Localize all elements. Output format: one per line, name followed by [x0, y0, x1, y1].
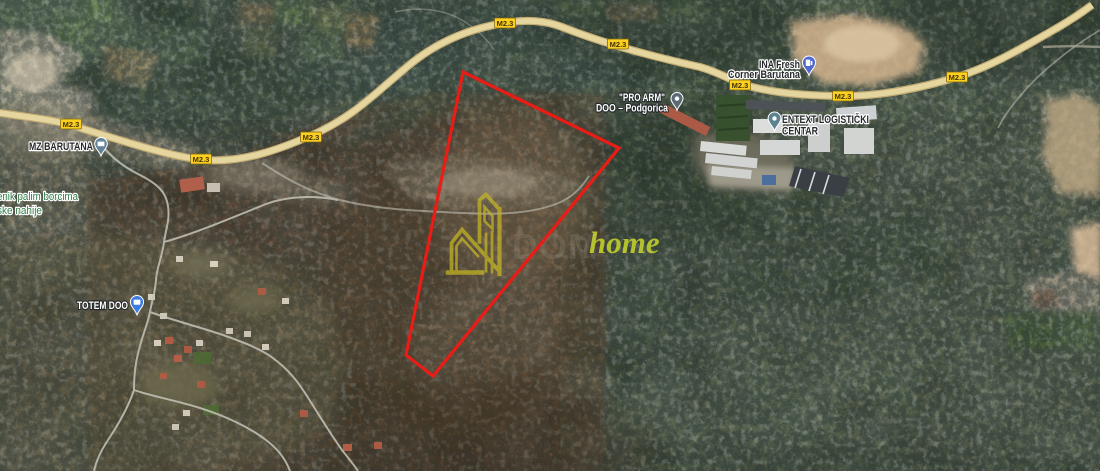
- svg-text:DOO – Podgorica: DOO – Podgorica: [596, 103, 669, 115]
- svg-text:M2.3: M2.3: [949, 73, 966, 82]
- svg-text:MZ BARUTANA: MZ BARUTANA: [29, 141, 93, 153]
- svg-text:home: home: [589, 225, 660, 260]
- svg-text:M2.3: M2.3: [835, 92, 852, 101]
- svg-text:M2.3: M2.3: [63, 120, 80, 129]
- svg-text:ske nahije: ske nahije: [0, 205, 42, 217]
- svg-text:M2.3: M2.3: [303, 133, 320, 142]
- svg-text:enik palim borcima: enik palim borcima: [0, 191, 79, 203]
- svg-text:ENTEXT LOGISTIČKI: ENTEXT LOGISTIČKI: [782, 113, 869, 126]
- svg-text:M2.3: M2.3: [610, 40, 627, 49]
- svg-text:CENTAR: CENTAR: [782, 126, 818, 138]
- svg-text:M2.3: M2.3: [497, 19, 514, 28]
- svg-text:M2.3: M2.3: [732, 81, 749, 90]
- svg-text:Corner Barutana: Corner Barutana: [728, 69, 801, 81]
- svg-text:M2.3: M2.3: [193, 155, 210, 164]
- svg-text:TOTEM DOO: TOTEM DOO: [77, 300, 128, 312]
